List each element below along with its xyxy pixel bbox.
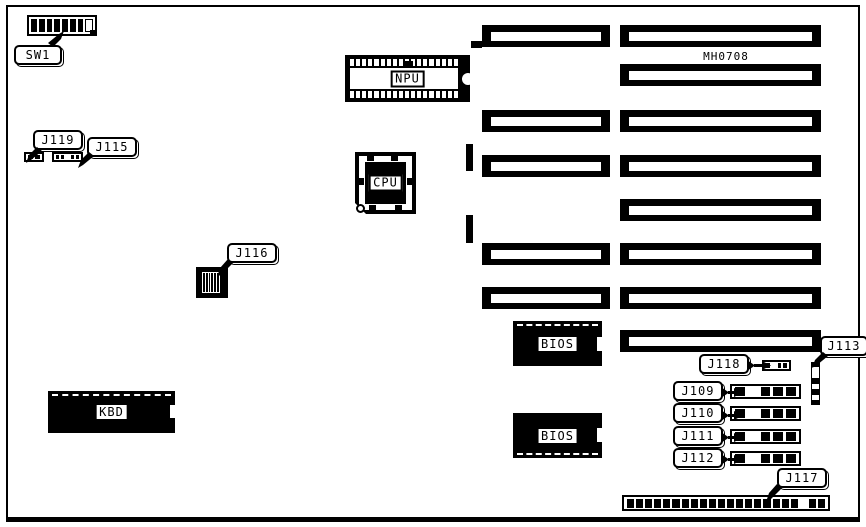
pointer-arrow-icon [747, 360, 772, 372]
npu-pin [387, 59, 391, 66]
pin-on [654, 499, 661, 508]
pin-on [682, 499, 689, 508]
component-bar [466, 144, 473, 171]
pin-on [663, 499, 670, 508]
pin-on [778, 363, 782, 368]
kbd-label: KBD [96, 405, 127, 419]
pin-on [773, 432, 783, 441]
pointer-arrow-icon [26, 147, 42, 163]
socket-tick [367, 156, 374, 161]
pin-on [786, 387, 796, 396]
pin-on [809, 499, 816, 508]
pointer-arrow-icon [721, 387, 744, 399]
bios-chip-1: BIOS [513, 321, 602, 366]
pin-on [761, 454, 771, 463]
expansion-slot [620, 110, 821, 132]
npu-pin [393, 59, 397, 66]
pointer-arrow-icon [721, 410, 744, 422]
stripe [206, 273, 208, 292]
callout-sw1: SW1 [14, 45, 62, 65]
npu-pin [356, 59, 360, 66]
expansion-slot [620, 64, 821, 86]
npu-pin [374, 91, 378, 98]
pin-on [761, 387, 771, 396]
cpu-chip: CPU [355, 152, 416, 214]
expansion-slot [482, 110, 610, 132]
socket-tick [407, 178, 412, 185]
bios2-label: BIOS [538, 429, 577, 443]
pin-on [818, 499, 825, 508]
kbd-chip: KBD [48, 391, 175, 433]
npu-pin [417, 91, 421, 98]
npu-pin [429, 59, 433, 66]
bios2-dashed-line [517, 453, 598, 455]
pin-on [709, 499, 716, 508]
stripe [203, 273, 205, 292]
pointer-arrow-icon [721, 454, 744, 466]
npu-pin [381, 59, 385, 66]
bios1-dashed-line [517, 324, 598, 326]
pin-on [783, 363, 787, 368]
j113-header [811, 362, 820, 405]
npu-pin [381, 91, 385, 98]
npu-pin [423, 59, 427, 66]
pin-off [85, 19, 93, 32]
socket-tick [359, 178, 364, 185]
pointer-arrow-icon [217, 259, 233, 277]
cpu-label: CPU [368, 175, 403, 192]
pin-on [78, 19, 84, 32]
callout-j116: J116 [227, 243, 277, 263]
callout-j111: J111 [673, 426, 723, 446]
socket-tick [369, 205, 376, 210]
expansion-slot [482, 25, 610, 47]
callout-j110: J110 [673, 403, 723, 423]
expansion-slot [620, 155, 821, 177]
pointer-arrow-icon [48, 31, 64, 47]
pin-on [636, 499, 643, 508]
callout-j112: J112 [673, 448, 723, 468]
kbd-dashed-line [52, 394, 171, 396]
callout-j119: J119 [33, 130, 83, 150]
npu-notch [462, 73, 474, 85]
npu-pin [454, 91, 458, 98]
expansion-slot [620, 287, 821, 309]
npu-pin [374, 59, 378, 66]
component-chip [471, 41, 482, 48]
cpu-pin1-dot [356, 204, 365, 213]
pin-on [718, 499, 725, 508]
npu-pin [362, 59, 366, 66]
npu-pin [442, 91, 446, 98]
bios1-label: BIOS [538, 337, 577, 351]
pin-on [786, 454, 796, 463]
socket-tick [395, 205, 402, 210]
pin-on [672, 499, 679, 508]
npu-pin [448, 91, 452, 98]
pin-on [791, 499, 798, 508]
npu-pin [399, 91, 403, 98]
pin-on [700, 499, 707, 508]
pointer-arrow-icon [812, 352, 828, 368]
expansion-slot [482, 155, 610, 177]
pin-on [773, 387, 783, 396]
bios1-notch [597, 337, 602, 351]
expansion-slot [482, 287, 610, 309]
seg-on [811, 401, 820, 405]
pin-on [786, 432, 796, 441]
npu-pin [362, 91, 366, 98]
pointer-arrow-icon [78, 152, 94, 168]
expansion-slot [620, 243, 821, 265]
npu-pin [393, 91, 397, 98]
callout-j109: J109 [673, 381, 723, 401]
npu-pin [368, 59, 372, 66]
npu-tab [403, 61, 413, 68]
pin-on [761, 432, 771, 441]
npu-label: NPU [390, 70, 425, 87]
stripe [211, 273, 213, 292]
callout-j117: J117 [777, 468, 827, 488]
pin-on [786, 409, 796, 418]
npu-pin [417, 59, 421, 66]
pin-on [645, 499, 652, 508]
pin-on [56, 155, 59, 159]
expansion-slot [620, 25, 821, 47]
npu-pin [350, 91, 354, 98]
npu-pin [350, 59, 354, 66]
pin-on [39, 19, 45, 32]
j117-connector [622, 495, 830, 511]
callout-j115: J115 [87, 137, 137, 157]
npu-pin [448, 59, 452, 66]
stripe [209, 273, 211, 292]
bios-chip-2: BIOS [513, 413, 602, 458]
pin-on [31, 19, 37, 32]
pointer-arrow-icon [721, 432, 744, 444]
npu-pin [436, 59, 440, 66]
pin-on [691, 499, 698, 508]
pin-on [71, 155, 74, 159]
expansion-slot [620, 330, 821, 352]
npu-pin [368, 91, 372, 98]
bios2-notch [597, 428, 602, 442]
seg-off [811, 366, 820, 379]
npu-pin [454, 59, 458, 66]
npu-pin [436, 91, 440, 98]
motherboard-diagram: MH0708 SW1 NPU CPU J119 [0, 0, 866, 527]
pin-on [773, 454, 783, 463]
pin-on [727, 499, 734, 508]
pointer-arrow-icon [766, 484, 782, 502]
pin-on [627, 499, 634, 508]
npu-pin [442, 59, 446, 66]
pin-on [61, 155, 64, 159]
npu-pin [356, 91, 360, 98]
kbd-notch [170, 405, 175, 418]
part-number-label: MH0708 [690, 50, 762, 63]
npu-pin [411, 91, 415, 98]
socket-tick [391, 156, 398, 161]
npu-chip: NPU [345, 55, 470, 102]
pin-on [761, 409, 771, 418]
expansion-slot [482, 243, 610, 265]
pin-on [736, 499, 743, 508]
pin-on [754, 499, 761, 508]
npu-pin [387, 91, 391, 98]
npu-pin [429, 91, 433, 98]
pin-on [782, 499, 789, 508]
callout-j118: J118 [699, 354, 749, 374]
pin-on [70, 19, 76, 32]
npu-pin [423, 91, 427, 98]
callout-j113: J113 [820, 336, 866, 356]
component-bar [466, 215, 473, 243]
pin-on [773, 409, 783, 418]
expansion-slot [620, 199, 821, 221]
npu-pin [405, 91, 409, 98]
npu-pin-row-bottom [350, 91, 458, 98]
stripe [214, 273, 216, 292]
pin-on [745, 499, 752, 508]
